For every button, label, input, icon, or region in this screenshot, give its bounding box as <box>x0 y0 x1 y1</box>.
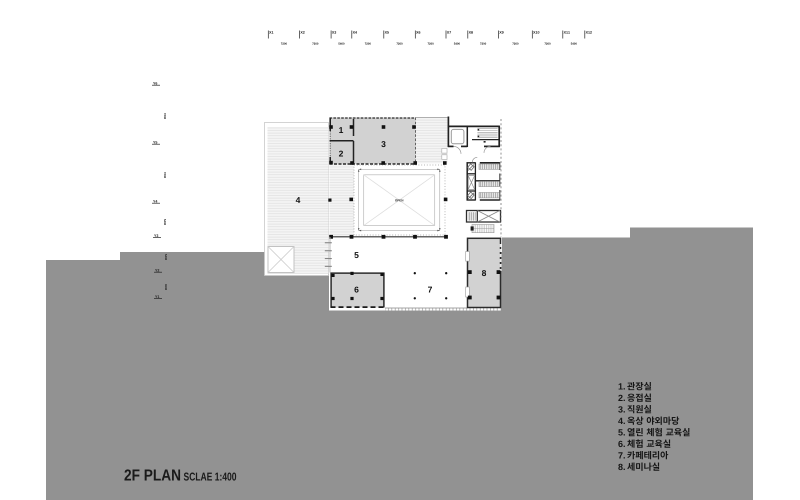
svg-text:6.: 6. <box>618 439 626 449</box>
svg-text:2.: 2. <box>618 393 626 403</box>
svg-text:4.: 4. <box>618 416 626 426</box>
svg-text:3.: 3. <box>618 405 626 415</box>
svg-text:1.: 1. <box>618 382 626 392</box>
svg-text:5.: 5. <box>618 428 626 438</box>
svg-text:7.: 7. <box>618 451 626 461</box>
svg-text:8.: 8. <box>618 462 626 472</box>
